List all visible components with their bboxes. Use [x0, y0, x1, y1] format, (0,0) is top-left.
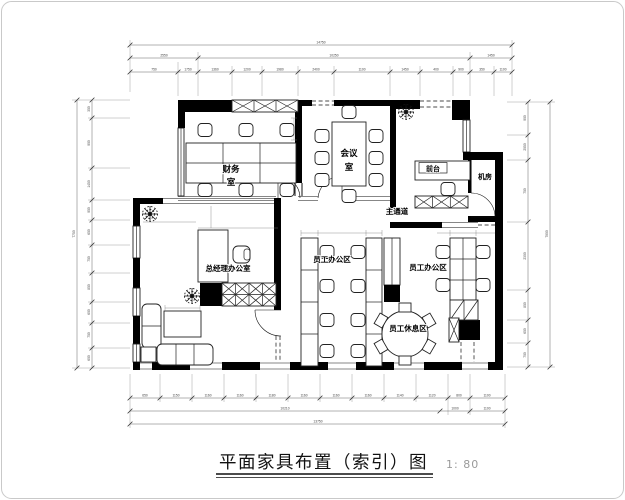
dim-label: 14750 — [316, 41, 325, 45]
side-table — [141, 347, 156, 362]
coffee-table — [164, 311, 201, 337]
drawing-title: 平面家具布置（索引）图 — [219, 453, 428, 473]
cabinet — [384, 238, 400, 302]
dim-label: 800 — [456, 394, 462, 398]
rest-area-label: 员工休息区 — [389, 323, 427, 333]
dim-label: 600 — [87, 355, 91, 361]
dim-label: 1160 — [364, 394, 371, 398]
dim-label: 350 — [479, 68, 485, 72]
finance-room: 财务 室 — [186, 100, 298, 197]
dimension-top: 14750 2550 10250 1450 750 1750 1360 1200… — [128, 40, 515, 96]
dim-label: 7900 — [545, 230, 549, 238]
dim-label: 900 — [87, 140, 91, 146]
dim-label: 1180 — [268, 394, 275, 398]
dim-label: 650 — [142, 394, 148, 398]
dim-label: 2050 — [523, 143, 527, 151]
plant-icon — [184, 288, 200, 304]
chair — [198, 184, 294, 197]
gm-office-label: 总经理办公室 — [206, 263, 251, 273]
dim-label: 1160 — [204, 394, 211, 398]
chair — [198, 124, 294, 137]
dim-label: 2550 — [160, 54, 168, 58]
dim-label: 650 — [523, 328, 527, 334]
chair — [441, 183, 455, 196]
dim-label: 1160 — [236, 394, 243, 398]
dim-label: 2300 — [523, 252, 527, 260]
sofa — [142, 304, 161, 348]
dim-label: 1150 — [172, 394, 179, 398]
dim-label: 900 — [523, 115, 527, 121]
interior-dim — [301, 230, 382, 236]
dim-label: 350 — [87, 106, 91, 112]
dim-label: 2400 — [312, 68, 320, 72]
dim-label: 600 — [87, 309, 91, 315]
dim-label: 10250 — [329, 54, 338, 58]
desk — [198, 230, 228, 282]
dim-label: 750 — [523, 188, 527, 194]
rest-area: 员工休息区 — [374, 303, 436, 365]
dim-label: 650 — [87, 229, 91, 235]
dim-label: 1120 — [428, 394, 435, 398]
dim-label: 950 — [87, 207, 91, 213]
dim-label: 750 — [151, 68, 157, 72]
door-arc — [255, 310, 281, 336]
machine-room: 机房 — [478, 172, 492, 181]
floor-plan-drawing: 财务 室 会议 室 前台 机房 主通道 — [0, 0, 625, 500]
dim-label: 1160 — [300, 394, 307, 398]
dim-label: 1000 — [451, 407, 459, 411]
finance-room-label: 室 — [227, 177, 236, 187]
dim-label: 7750 — [72, 230, 76, 238]
cabinet — [232, 100, 298, 112]
dimension-left: 7750 350 900 1450 950 650 750 850 600 75… — [72, 98, 130, 371]
dim-label: 1100 — [483, 394, 490, 398]
desk — [450, 238, 476, 300]
dim-label: 1980 — [276, 68, 284, 72]
interior-dim — [437, 230, 495, 236]
dim-label: 1140 — [396, 394, 403, 398]
staff-area-1-label: 员工办公区 — [313, 254, 351, 264]
gm-office: 总经理办公室 — [141, 206, 278, 365]
dim-label: 1100 — [499, 68, 506, 72]
dim-label: 400 — [433, 68, 439, 72]
drawing-scale: 1: 80 — [446, 458, 479, 471]
meeting-room-label: 室 — [345, 162, 354, 172]
chair — [233, 246, 250, 263]
dim-label: 10210 — [280, 407, 289, 411]
dim-label: 700 — [523, 352, 527, 358]
staff-area-2-label: 员工办公区 — [409, 262, 447, 272]
dim-label: 750 — [87, 256, 91, 262]
dim-label: 1200 — [243, 68, 251, 72]
meeting-room: 会议 室 — [315, 104, 414, 203]
dim-label: 850 — [87, 284, 91, 290]
sofa — [157, 344, 213, 365]
plant-icon — [142, 206, 158, 222]
desk — [186, 143, 296, 183]
reception-desk — [415, 161, 470, 180]
meeting-room-label: 会议 — [339, 148, 358, 158]
reception-area: 前台 — [415, 161, 470, 208]
dim-label: 1750 — [184, 68, 192, 72]
round-table — [374, 303, 436, 365]
machine-room-label: 机房 — [478, 172, 492, 181]
title-block: 平面家具布置（索引）图 1: 80 — [216, 453, 479, 478]
dim-label: 750 — [87, 332, 91, 338]
cad-drawing-page: 财务 室 会议 室 前台 机房 主通道 — [0, 0, 625, 500]
door-arc — [471, 193, 495, 217]
dim-label: 1100 — [483, 407, 490, 411]
dim-label: 850 — [523, 302, 527, 308]
dim-label: 13750 — [313, 420, 322, 424]
dim-label: 1360 — [211, 68, 219, 72]
dim-label: 1450 — [87, 180, 91, 188]
finance-room-label: 财务 — [221, 164, 240, 174]
cabinet — [415, 196, 468, 208]
cabinet — [200, 283, 276, 306]
dimension-right: 7900 900 2050 750 2300 850 650 700 — [507, 100, 555, 370]
dim-label: 1450 — [487, 54, 495, 58]
dimension-bottom: 650 1150 1160 1160 1180 1160 1160 1160 1… — [128, 374, 508, 428]
dim-label: 1160 — [332, 394, 339, 398]
dim-label: 900 — [458, 68, 464, 72]
corridor-label: 主通道 — [386, 206, 409, 216]
reception-label: 前台 — [426, 164, 440, 173]
dim-label: 1100 — [358, 68, 365, 72]
dim-label: 1450 — [401, 68, 409, 72]
